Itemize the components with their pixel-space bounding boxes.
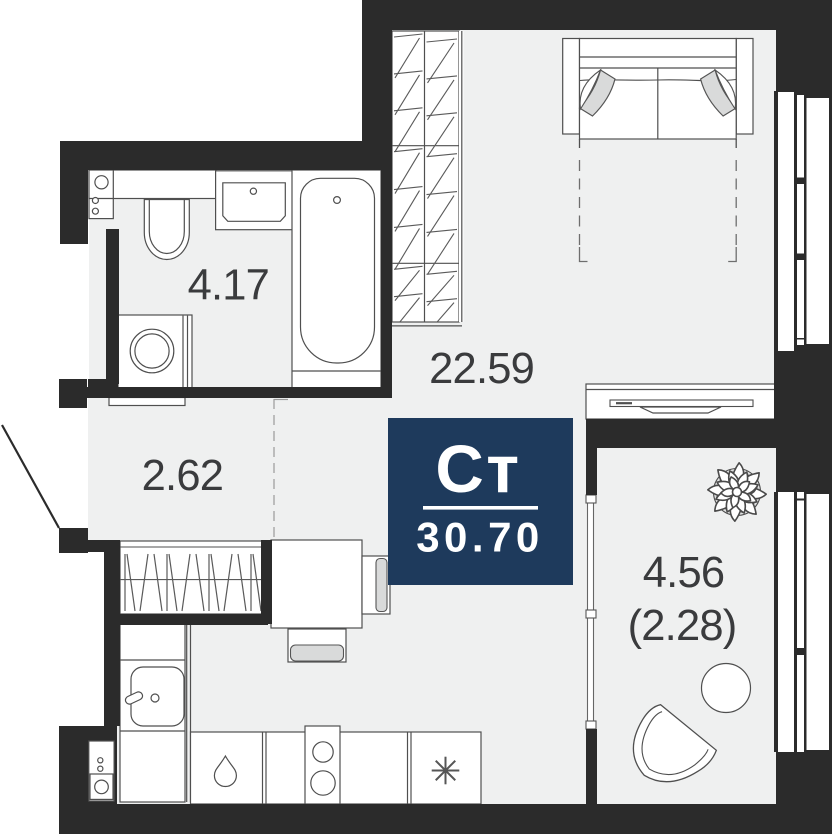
svg-text:(2.28): (2.28): [628, 602, 737, 650]
svg-text:30.70: 30.70: [416, 514, 544, 561]
svg-text:4.17: 4.17: [188, 261, 269, 309]
svg-text:4.56: 4.56: [643, 549, 724, 597]
svg-text:2.62: 2.62: [142, 452, 223, 500]
svg-text:Ст: Ст: [435, 432, 521, 507]
svg-text:22.59: 22.59: [429, 345, 534, 393]
